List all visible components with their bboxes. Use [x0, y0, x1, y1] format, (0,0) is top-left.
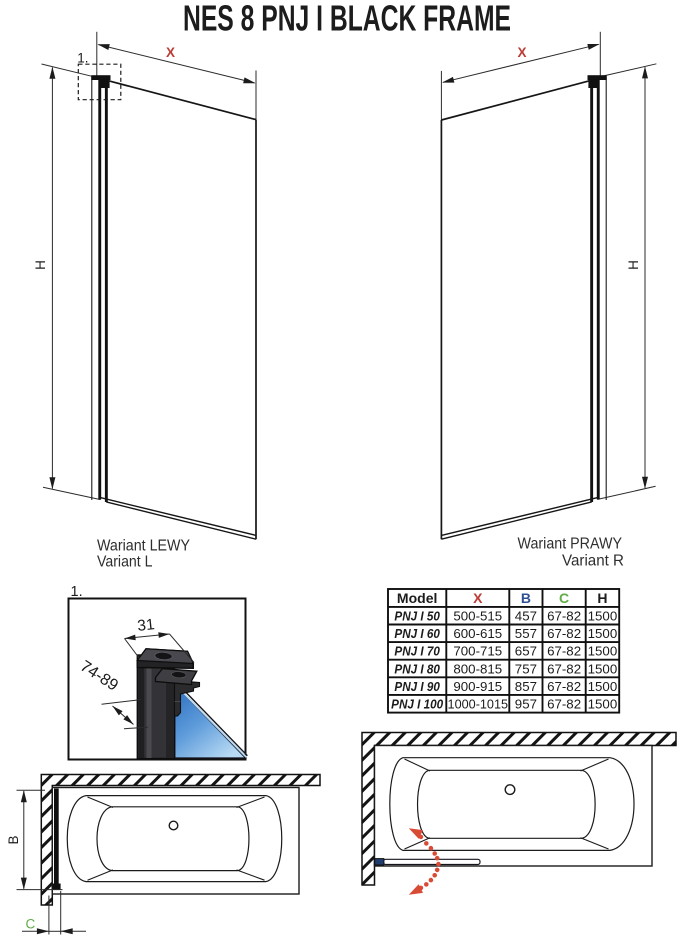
svg-text:1500: 1500	[588, 644, 618, 659]
svg-text:1.: 1.	[77, 51, 88, 66]
svg-text:957: 957	[515, 697, 537, 712]
svg-text:31: 31	[137, 616, 156, 635]
svg-text:857: 857	[515, 679, 537, 694]
svg-text:Wariant LEWY: Wariant LEWY	[97, 538, 190, 555]
svg-text:NES 8 PNJ I BLACK FRAME: NES 8 PNJ I BLACK FRAME	[183, 0, 511, 39]
svg-text:1500: 1500	[588, 626, 618, 641]
svg-text:900-915: 900-915	[453, 679, 502, 694]
svg-text:PNJ I 70: PNJ I 70	[394, 644, 440, 659]
svg-text:67-82: 67-82	[547, 697, 581, 712]
svg-text:457: 457	[515, 609, 537, 624]
svg-text:1500: 1500	[588, 697, 618, 712]
svg-text:X: X	[473, 590, 483, 606]
svg-text:PNJ I 50: PNJ I 50	[394, 609, 440, 624]
svg-text:67-82: 67-82	[547, 644, 581, 659]
svg-text:X: X	[517, 45, 526, 60]
svg-text:67-82: 67-82	[547, 679, 581, 694]
svg-text:557: 557	[515, 626, 537, 641]
svg-text:X: X	[166, 45, 175, 60]
svg-text:Variant R: Variant R	[562, 553, 624, 570]
svg-text:PNJ I 100: PNJ I 100	[391, 697, 443, 712]
svg-text:PNJ I 90: PNJ I 90	[394, 679, 440, 694]
svg-text:Variant L: Variant L	[97, 554, 153, 571]
svg-text:H: H	[626, 260, 641, 270]
svg-text:67-82: 67-82	[547, 661, 581, 676]
svg-text:Model: Model	[397, 590, 437, 606]
svg-text:1000-1015: 1000-1015	[448, 697, 509, 712]
svg-text:657: 657	[515, 644, 537, 659]
svg-text:67-82: 67-82	[547, 626, 581, 641]
svg-text:Wariant PRAWY: Wariant PRAWY	[518, 536, 623, 553]
svg-text:700-715: 700-715	[453, 644, 502, 659]
svg-text:500-515: 500-515	[453, 609, 502, 624]
svg-text:B: B	[6, 835, 21, 844]
svg-text:1500: 1500	[588, 661, 618, 676]
svg-text:800-815: 800-815	[453, 661, 502, 676]
svg-text:757: 757	[515, 661, 537, 676]
svg-text:67-82: 67-82	[547, 609, 581, 624]
svg-text:PNJ I 80: PNJ I 80	[394, 661, 440, 676]
svg-text:1500: 1500	[588, 609, 618, 624]
svg-text:1500: 1500	[588, 679, 618, 694]
svg-text:B: B	[521, 590, 531, 606]
svg-text:600-615: 600-615	[453, 626, 502, 641]
svg-text:C: C	[26, 917, 36, 932]
svg-text:H: H	[33, 260, 48, 270]
svg-text:H: H	[597, 590, 607, 606]
svg-text:C: C	[559, 590, 569, 606]
svg-text:PNJ I 60: PNJ I 60	[394, 626, 440, 641]
